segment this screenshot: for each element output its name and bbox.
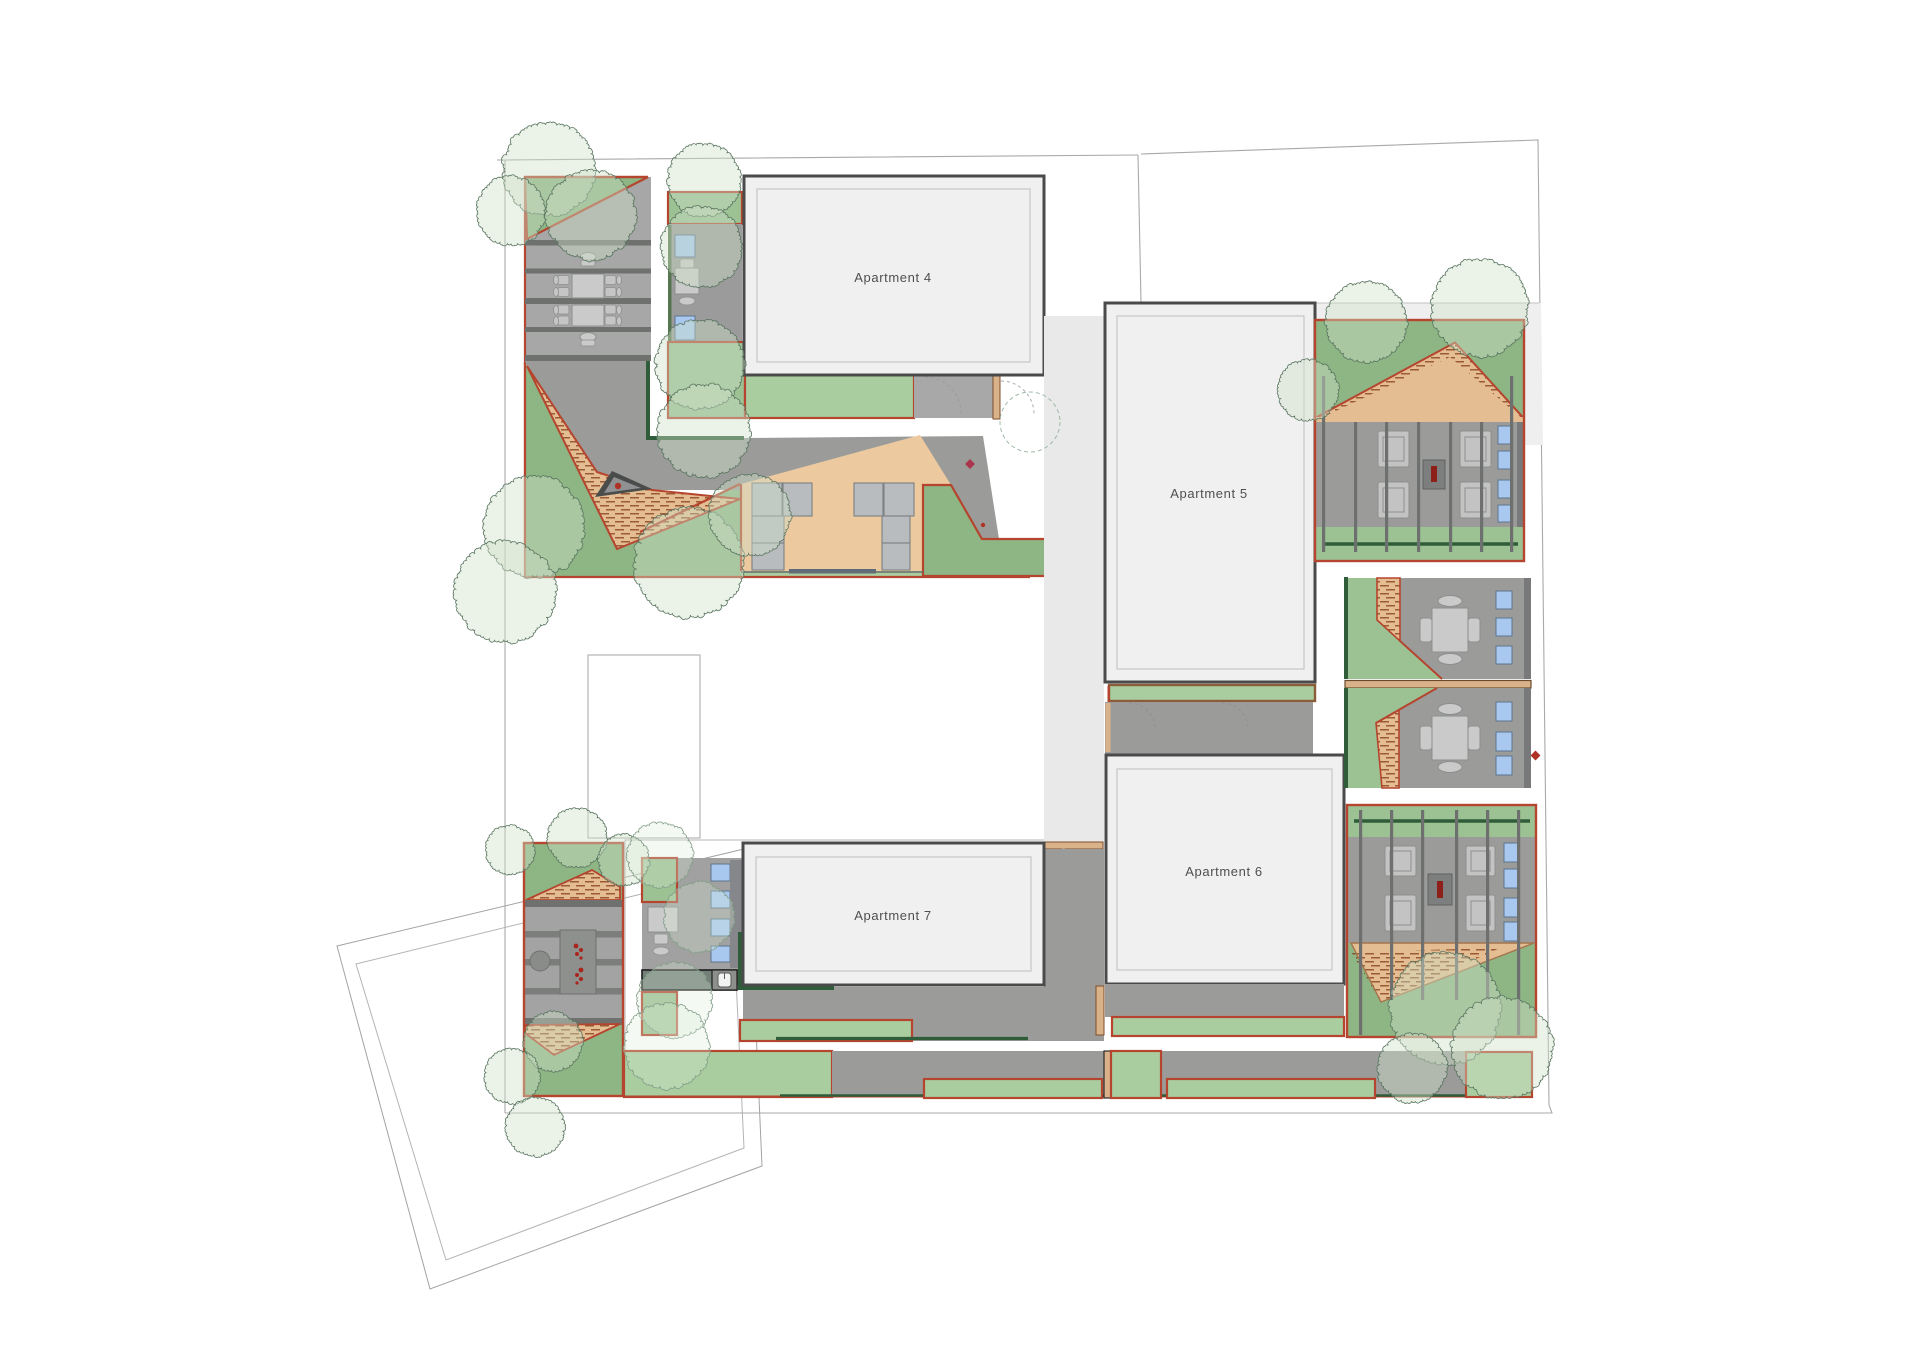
svg-text:Apartment 5: Apartment 5	[1170, 486, 1247, 501]
svg-text:Apartment 7: Apartment 7	[854, 908, 931, 923]
svg-text:Apartment 4: Apartment 4	[854, 270, 931, 285]
svg-text:Apartment 6: Apartment 6	[1185, 864, 1262, 879]
